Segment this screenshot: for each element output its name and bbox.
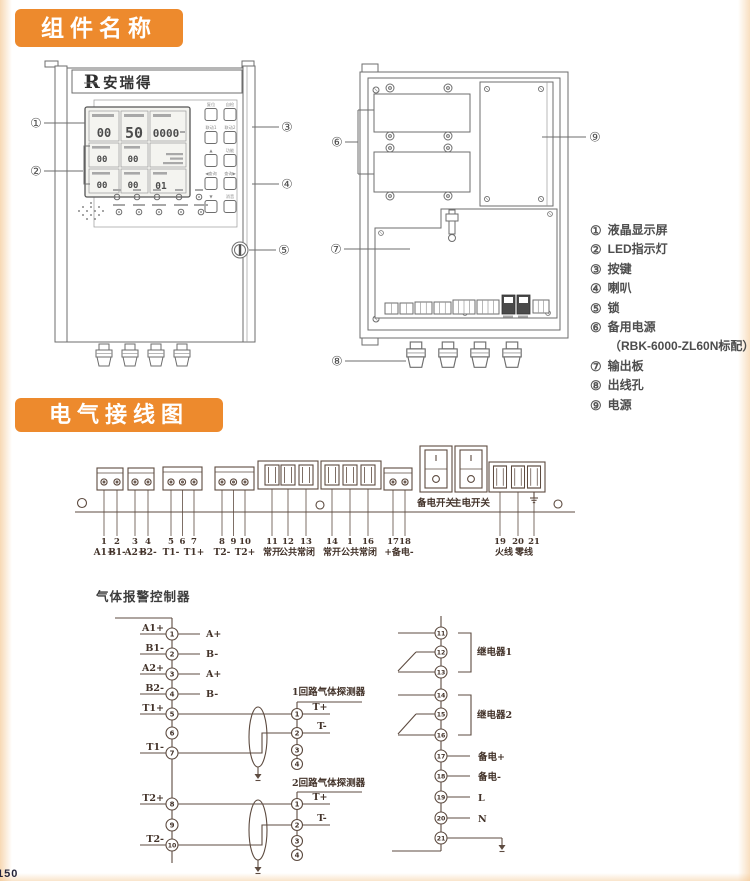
node-number: 15 (437, 711, 446, 718)
legend-label: 液晶显示屏 (608, 221, 668, 240)
terminal-label: T2+ (235, 548, 256, 558)
panel-button (205, 132, 217, 144)
legend-num: ② (590, 240, 602, 259)
callout-9-marker: ⑨ (589, 131, 601, 146)
bus-label: T1+ (142, 703, 164, 714)
detector-pin: 3 (295, 747, 300, 755)
node-number: 20 (437, 815, 446, 822)
terminal-number: 19 (494, 537, 506, 547)
terminal-number: 5 (168, 537, 174, 547)
legend-item: ⑨电源 (590, 396, 750, 415)
button-label: 联动2 (224, 124, 235, 131)
panel-button (224, 132, 236, 144)
lcd-value: 00 (128, 155, 139, 165)
button-label: 功能 (226, 147, 235, 154)
bus-label: T2- (146, 834, 164, 845)
door-lock (232, 242, 248, 258)
node-number: 1 (170, 631, 175, 639)
panel-button (224, 109, 236, 121)
node-number: 19 (437, 794, 446, 801)
legend-label: 电源 (608, 396, 632, 415)
callout-4-marker: ④ (281, 178, 293, 193)
node-number: 7 (170, 750, 175, 758)
page-number: 150 (0, 868, 18, 880)
bus-label: L (478, 793, 485, 804)
terminal-label: 公共 (279, 546, 297, 558)
lcd-value: 00 (97, 181, 108, 191)
legend-label: LED指示灯 (608, 240, 668, 259)
ground-symbol (499, 838, 506, 852)
node-number: 16 (437, 732, 446, 739)
panel-button (224, 155, 236, 167)
shielded-cable-1 (249, 707, 267, 767)
component-legend: ①液晶显示屏 ②LED指示灯 ③按键 ④喇叭 ⑤锁 ⑥备用电源 （RBK-600… (590, 221, 750, 415)
bus-label: A2+ (141, 663, 164, 674)
button-label: 消音 (226, 193, 234, 200)
button-label: 自检 (226, 101, 235, 108)
legend-num: ⑧ (590, 376, 602, 395)
node-number: 3 (170, 671, 175, 679)
node-number: 14 (437, 692, 446, 699)
terminal-number: 14 (326, 537, 338, 547)
terminal-number: 17 (387, 537, 399, 547)
terminal-number: 20 (512, 537, 524, 547)
bus-label: 备电- (477, 771, 501, 783)
bus-out-label: B- (206, 649, 218, 660)
bus-out-label: B- (206, 689, 218, 700)
callout-8-marker: ⑧ (331, 355, 343, 370)
terminal-number: 6 (180, 537, 186, 547)
bus-label: 备电+ (477, 751, 505, 763)
button-label: 复位 (207, 101, 215, 108)
legend-label: 输出板 (608, 357, 644, 376)
terminal-number: 1 (347, 537, 353, 547)
section-header-components: 组件名称 (15, 9, 183, 47)
terminal-number: 4 (145, 537, 151, 547)
controller-title: 气体报警控制器 (95, 589, 191, 604)
detector-pin: 2 (295, 730, 300, 738)
detector-pin: 1 (295, 801, 300, 809)
terminal-label: 常闭 (297, 546, 315, 558)
terminal-label: B1- (108, 548, 126, 558)
brand-name: 安瑞得 (103, 74, 153, 92)
legend-item: ⑥备用电源 (590, 318, 750, 337)
node-number: 9 (170, 822, 175, 830)
controller-right-bus: 继电器1 继电器2 备电+ 备电- L N 11 12 13 14 15 16 … (392, 616, 512, 852)
terminal-label: +备电- (384, 546, 414, 558)
legend-label: 备用电源 (608, 318, 656, 337)
legend-num: ④ (590, 279, 602, 298)
detector-pin: 2 (295, 822, 300, 830)
node-number: 12 (437, 649, 446, 656)
legend-num: ⑨ (590, 396, 602, 415)
bus-label: T1- (146, 742, 164, 753)
mounting-hole (78, 499, 87, 508)
terminal-label: 火线 (495, 546, 513, 558)
node-number: 13 (437, 669, 446, 676)
detector-pin: 1 (295, 711, 300, 719)
front-cabinet-drawing: R 安瑞得 00 50 (30, 61, 293, 366)
legend-num: ① (590, 221, 602, 240)
bus-out-label: A+ (205, 669, 221, 680)
legend-item: ⑦输出板 (590, 357, 750, 376)
terminal-number: 7 (191, 537, 197, 547)
relay-1-label: 继电器1 (477, 646, 512, 658)
legend-item: ②LED指示灯 (590, 240, 750, 259)
legend-note: （RBK-6000-ZL60N标配） (590, 337, 750, 356)
bus-label: N (478, 814, 487, 825)
terminal-number: 18 (399, 537, 411, 547)
brand-logo: R (84, 71, 100, 93)
detector-pin-label: T+ (312, 792, 327, 803)
legend-item: ④喇叭 (590, 279, 750, 298)
detector-title: 1回路气体探测器 (292, 686, 366, 698)
lcd-value: 50 (125, 124, 143, 142)
legend-label: 出线孔 (608, 376, 644, 395)
button-label: 查询▶ (224, 170, 236, 177)
legend-label: 按键 (608, 260, 632, 279)
backup-switch-label: 备电开关 (416, 497, 456, 509)
terminal-label: 常闭 (359, 546, 377, 558)
panel-button (205, 201, 217, 213)
detector-pin-label: T- (317, 813, 326, 824)
lcd-value: 00 (97, 155, 108, 165)
brand-logo-bar: R 安瑞得 (72, 70, 242, 93)
callout-7-marker: ⑦ (330, 243, 342, 258)
terminal-number: 16 (362, 537, 374, 547)
mounting-hole (316, 501, 324, 509)
bus-label: A1+ (141, 623, 164, 634)
node-number: 6 (170, 730, 175, 738)
wiring-diagram: 备电开关 主电开关 1 2 3 4 5 6 (0, 440, 750, 881)
terminal-label: 公共 (341, 546, 359, 558)
terminal-labels: A1+ B1- A2+ B2- T1- T1+ T2- T2+ 常开 公共 常闭… (93, 546, 533, 558)
panel-button (205, 155, 217, 167)
wiring-schematic: 气体报警控制器 A1+ A+ B1- B- A2+ A+ B2- B- T1+ … (95, 589, 512, 874)
panel-button (224, 178, 236, 190)
legend-item: ⑧出线孔 (590, 376, 750, 395)
legend-label: 喇叭 (608, 279, 632, 298)
callout-1-marker: ① (30, 117, 42, 132)
terminal-number: 21 (528, 537, 540, 547)
panel-button (205, 178, 217, 190)
manual-page: 组件名称 电气接线图 R 安瑞得 (0, 0, 750, 881)
front-cable-glands (96, 344, 190, 366)
terminal-number: 12 (282, 537, 294, 547)
legend-num: ③ (590, 260, 602, 279)
button-label: ◀查询 (205, 170, 217, 177)
terminal-number: 1 (101, 537, 107, 547)
node-number: 21 (437, 835, 446, 842)
detector-pin: 4 (295, 852, 300, 860)
terminal-label: T1- (163, 548, 180, 558)
callout-6-marker: ⑥ (331, 136, 343, 151)
ground-symbol (255, 860, 262, 874)
detector-pin: 3 (295, 838, 300, 846)
lcd-display: 00 50 0000 00 00 00 00 01 (85, 107, 190, 197)
lcd-value: 00 (97, 126, 111, 140)
callout-2-marker: ② (30, 165, 42, 180)
detector-pin-label: T- (317, 721, 326, 732)
node-number: 18 (437, 773, 446, 780)
bus-label: B1- (145, 643, 164, 654)
terminal-number: 11 (266, 537, 278, 547)
legend-item: ⑤锁 (590, 299, 750, 318)
rear-cable-glands (407, 342, 521, 367)
callout-5-marker: ⑤ (278, 244, 290, 259)
main-power-switch (455, 446, 487, 492)
terminal-number: 13 (300, 537, 312, 547)
callout-3-marker: ③ (281, 121, 293, 136)
controller-left-bus: A1+ A+ B1- B- A2+ A+ B2- B- T1+ T1- T2+ … (115, 618, 291, 874)
bus-label: T2+ (142, 793, 164, 804)
terminal-strip: 备电开关 主电开关 1 2 3 4 5 6 (75, 446, 575, 558)
rear-cabinet-drawing: ⑥ ⑦ ⑧ ⑨ (330, 64, 601, 370)
shielded-cable-2 (249, 800, 267, 860)
detector-2: 2回路气体探测器 T+ T- 1 2 3 4 (292, 777, 366, 861)
node-number: 8 (170, 801, 175, 809)
terminal-number: 8 (219, 537, 225, 547)
backup-power-switch (420, 446, 452, 492)
main-switch-label: 主电开关 (452, 497, 491, 509)
section-header-wiring: 电气接线图 (15, 398, 223, 432)
legend-num: ⑥ (590, 318, 602, 337)
terminal-label: 零线 (514, 546, 533, 558)
legend-num: ⑤ (590, 299, 602, 318)
terminal-number: 9 (231, 537, 237, 547)
detector-pin-label: T+ (312, 702, 327, 713)
terminal-number: 3 (132, 537, 138, 547)
legend-item: ①液晶显示屏 (590, 221, 750, 240)
terminal-label: 常开 (323, 546, 341, 558)
ground-symbol (255, 767, 262, 781)
node-number: 10 (168, 843, 177, 850)
power-switches: 备电开关 主电开关 (416, 446, 491, 509)
terminal-numbers: 1 2 3 4 5 6 7 8 9 10 11 12 13 14 1 16 17… (101, 537, 540, 547)
button-label: 联动1 (205, 124, 216, 131)
lcd-value: 0000 (153, 127, 180, 140)
terminal-number: 2 (114, 537, 120, 547)
detector-pin: 4 (295, 761, 300, 769)
node-number: 2 (170, 651, 175, 659)
detector-1: 1回路气体探测器 T+ T- 1 2 3 4 (292, 686, 366, 770)
mounting-hole (554, 500, 562, 508)
panel-button (224, 201, 236, 213)
power-supply-panel (480, 82, 553, 206)
terminal-label: B2- (139, 548, 157, 558)
terminal-number: 10 (239, 537, 251, 547)
bus-label: B2- (145, 683, 164, 694)
legend-label: 锁 (608, 299, 620, 318)
terminal-label: T1+ (184, 548, 205, 558)
node-number: 4 (170, 691, 175, 699)
terminal-label: T2- (214, 548, 231, 558)
legend-item: ③按键 (590, 260, 750, 279)
legend-num: ⑦ (590, 357, 602, 376)
relay-2-label: 继电器2 (477, 709, 512, 721)
detector-title: 2回路气体探测器 (292, 777, 366, 789)
node-number: 5 (170, 711, 175, 719)
node-number: 17 (437, 753, 446, 760)
node-number: 11 (437, 630, 446, 637)
bus-out-label: A+ (205, 629, 221, 640)
panel-button (205, 109, 217, 121)
